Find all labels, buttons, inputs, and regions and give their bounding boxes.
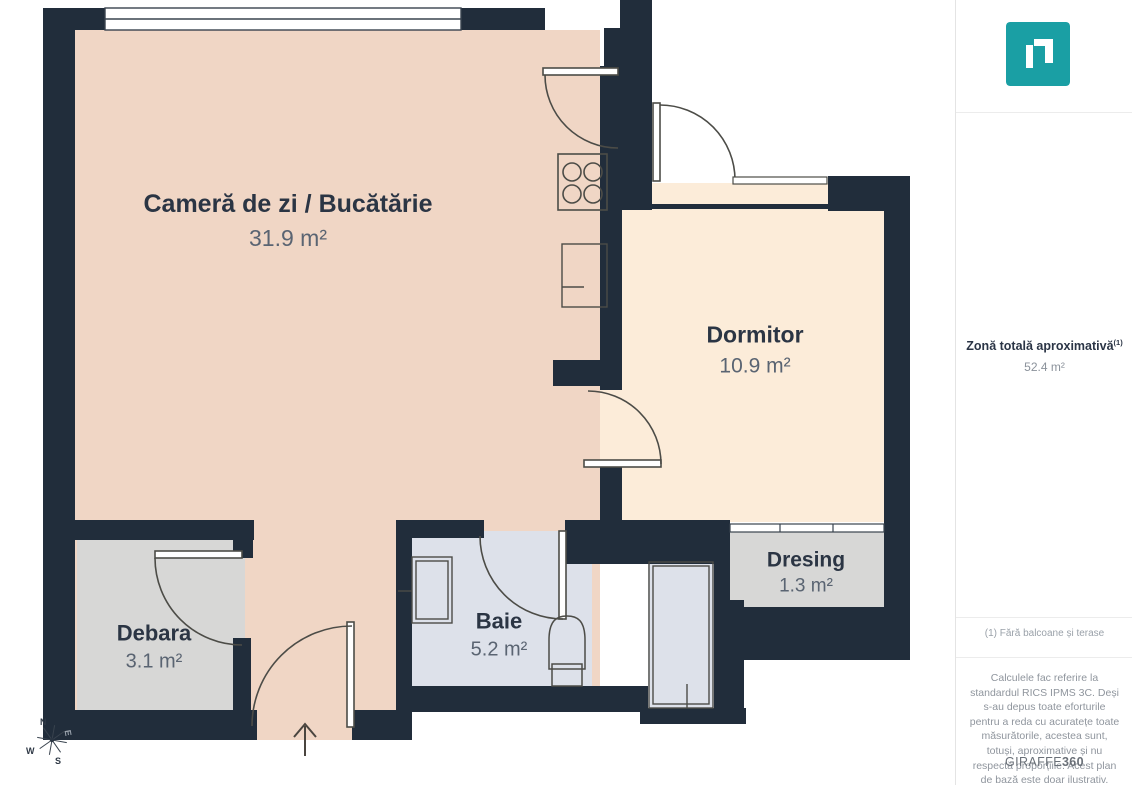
door-arc-icon [653,103,827,184]
door-arc-icon [584,391,661,467]
compass-south-label: S [55,756,61,766]
room-name: Dresing [767,549,845,573]
room-area: 3.1 m² [117,651,192,674]
sink-icon [398,557,452,623]
footnote-marker: (1) [1114,338,1123,347]
room-name: Debara [117,621,192,647]
info-sidebar: Zonă totală aproximativă(1) 52.4 m² (1) … [955,0,1132,785]
room-name: Dormitor [706,322,803,349]
compass-west-label: W [26,746,35,756]
room-label-bedroom: Dormitor 10.9 m² [706,322,803,379]
divider [956,112,1132,113]
room-name: Baie [471,609,528,635]
divider [956,657,1132,658]
room-label-living: Cameră de zi / Bucătărie 31.9 m² [143,190,432,252]
room-area: 10.9 m² [706,355,803,379]
brand-logo-icon [1006,22,1070,86]
toilet-icon [549,616,585,686]
total-area-label: Zonă totală aproximativă(1) [956,338,1132,353]
divider [956,617,1132,618]
shower-icon [649,562,713,708]
door-arc-icon [480,531,566,619]
entrance-arrow-icon [294,724,316,756]
compass-north-label: N [40,717,47,727]
room-label-bathroom: Baie 5.2 m² [471,609,528,662]
brand-suffix: 360 [1062,755,1084,769]
floorplan-page: N W S E Cameră de zi / Bucătărie 31.9 m²… [0,0,1132,785]
compass-icon [37,725,67,755]
sliding-door-icon [730,524,884,532]
brand-name: GIRAFFE [1005,755,1062,769]
window-icon [105,8,461,30]
door-arc-icon [543,68,618,148]
counter-icon [562,244,607,307]
room-area: 1.3 m² [767,576,845,598]
room-area: 5.2 m² [471,639,528,662]
room-label-storage: Debara 3.1 m² [117,621,192,674]
total-area-value: 52.4 m² [956,360,1132,374]
room-area: 31.9 m² [143,225,432,252]
stove-icon [558,154,607,210]
door-arc-icon [252,622,354,727]
brand-wordmark: GIRAFFE360 [956,755,1132,769]
room-name: Cameră de zi / Bucătărie [143,190,432,219]
footnote-text: (1) Fără balcoane și terase [956,628,1132,639]
room-label-dressing: Dresing 1.3 m² [767,549,845,598]
